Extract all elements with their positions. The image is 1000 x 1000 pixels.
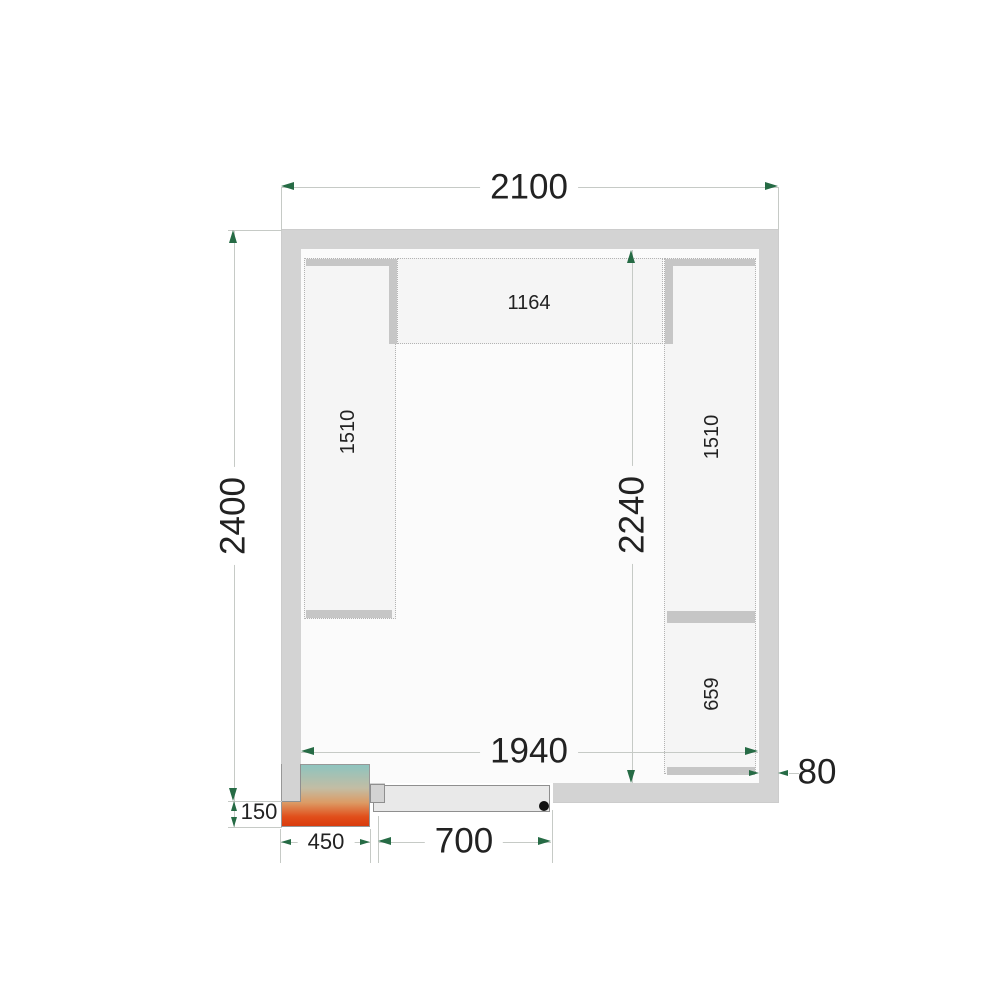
shelf-bar-left-bottom: [306, 610, 392, 618]
shelf-right-length-label: 1510: [702, 415, 722, 460]
dim-arrow-outer-depth-bottom: [229, 788, 237, 801]
dim-arrow-unit-protrusion-bottom: [231, 817, 237, 827]
dim-arrow-wall-left: [749, 770, 759, 776]
dim-arrow-outer-depth-top: [229, 230, 237, 243]
dim-label-wall-thickness: 80: [798, 755, 837, 790]
dim-arrow-inner-width-left: [301, 747, 314, 755]
dim-label-outer-width: 2100: [480, 170, 578, 205]
door-jamb: [370, 784, 385, 803]
dim-label-outer-depth: 2400: [216, 467, 251, 565]
dim-arrow-inner-depth-bottom: [627, 770, 635, 783]
shelf-bar-right-top: [668, 259, 755, 266]
wall-corner-overlay: [282, 764, 301, 802]
dim-tail-wall-left: [738, 773, 748, 774]
dim-arrow-wall-right: [778, 770, 788, 776]
door-handle-dot: [539, 801, 549, 811]
shelf-left-length-label: 1510: [338, 410, 358, 455]
door-leaf: [373, 785, 550, 812]
ext-line-door-width-right: [552, 810, 553, 863]
ext-line-unit-width-right: [370, 829, 371, 863]
dim-arrow-inner-width-right: [745, 747, 758, 755]
dim-arrow-unit-width-left: [281, 839, 291, 845]
dim-label-unit-protrusion: 150: [241, 801, 278, 823]
dim-arrow-unit-protrusion-top: [231, 801, 237, 811]
dim-label-inner-width: 1940: [480, 734, 578, 769]
ext-line-unit-width-left: [280, 829, 281, 863]
shelf-right-front-length-label: 659: [702, 677, 722, 710]
ext-line-outer-width-right: [778, 187, 779, 230]
dim-arrow-door-width-right: [538, 837, 551, 845]
shelf-bar-right-middle: [667, 611, 755, 623]
dim-arrow-outer-width-left: [281, 182, 294, 190]
shelf-back-length-label: 1164: [507, 293, 550, 313]
shelf-bar-left-post: [389, 259, 397, 344]
ext-line-outer-width-left: [281, 187, 282, 230]
dim-label-door-width: 700: [425, 824, 503, 859]
shelf-bar-left-top: [306, 259, 395, 266]
dim-label-inner-depth: 2240: [615, 466, 650, 564]
dim-arrow-unit-width-right: [360, 839, 370, 845]
dim-arrow-outer-width-right: [765, 182, 778, 190]
dim-label-unit-width: 450: [298, 831, 355, 853]
dim-arrow-door-width-left: [378, 837, 391, 845]
ext-line-unit-protrusion: [228, 827, 282, 828]
cold-room-floor-plan: 1164 1510 1510 659 2100 2400 2240 1940 8…: [0, 0, 1000, 1000]
shelf-bar-right-post: [665, 259, 673, 344]
dim-arrow-inner-depth-top: [627, 250, 635, 263]
